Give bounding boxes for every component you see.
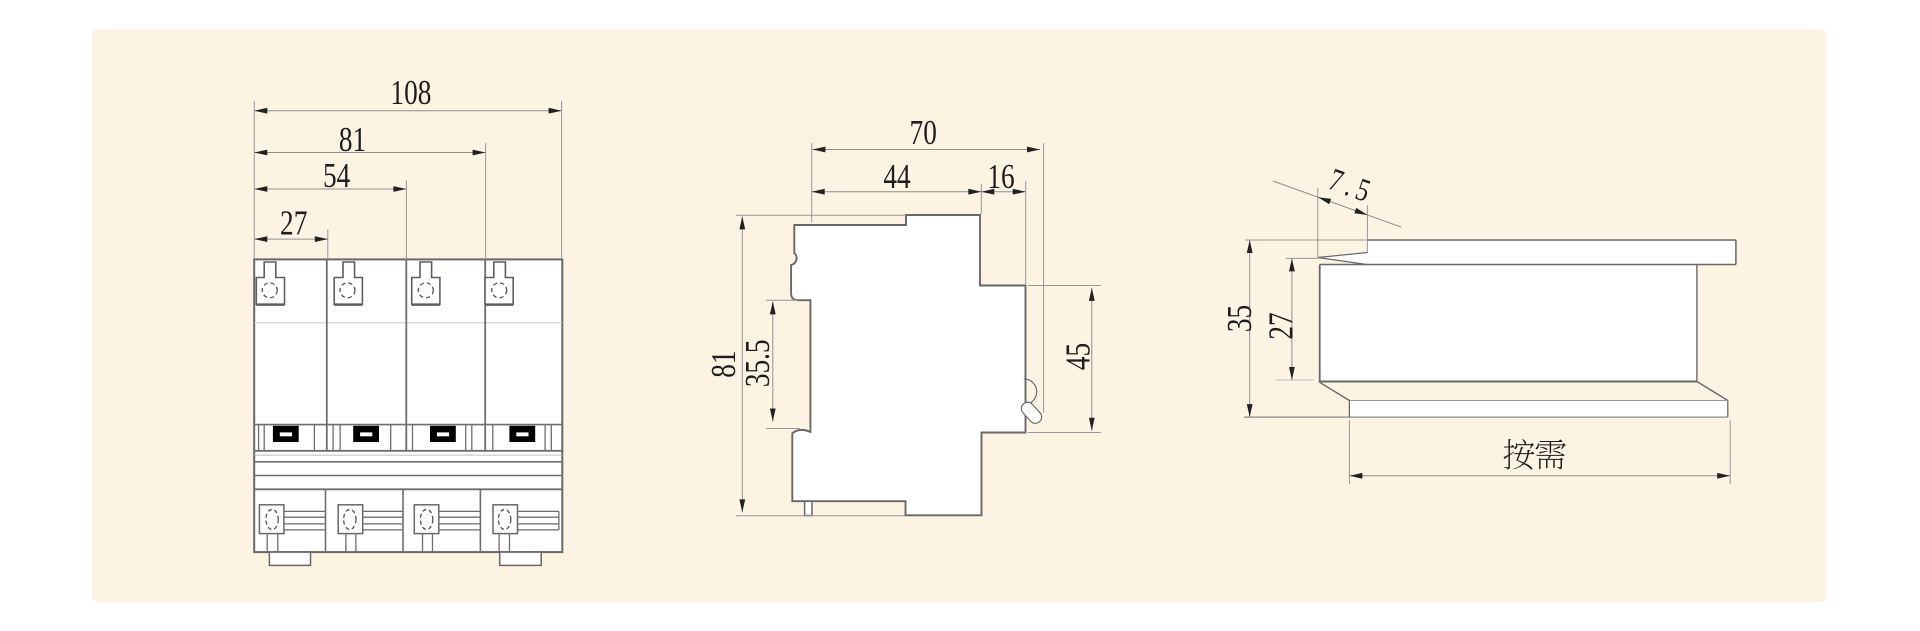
svg-text:44: 44 — [883, 157, 911, 196]
svg-text:16: 16 — [987, 157, 1014, 196]
svg-text:54: 54 — [323, 156, 351, 195]
svg-text:81: 81 — [339, 120, 366, 159]
svg-text:45: 45 — [1058, 343, 1097, 370]
svg-text:35.5: 35.5 — [738, 339, 777, 387]
svg-text:108: 108 — [390, 73, 431, 112]
svg-text:70: 70 — [910, 113, 937, 152]
svg-text:27: 27 — [280, 203, 307, 242]
svg-text:27: 27 — [1261, 312, 1300, 339]
svg-text:35: 35 — [1220, 305, 1259, 332]
